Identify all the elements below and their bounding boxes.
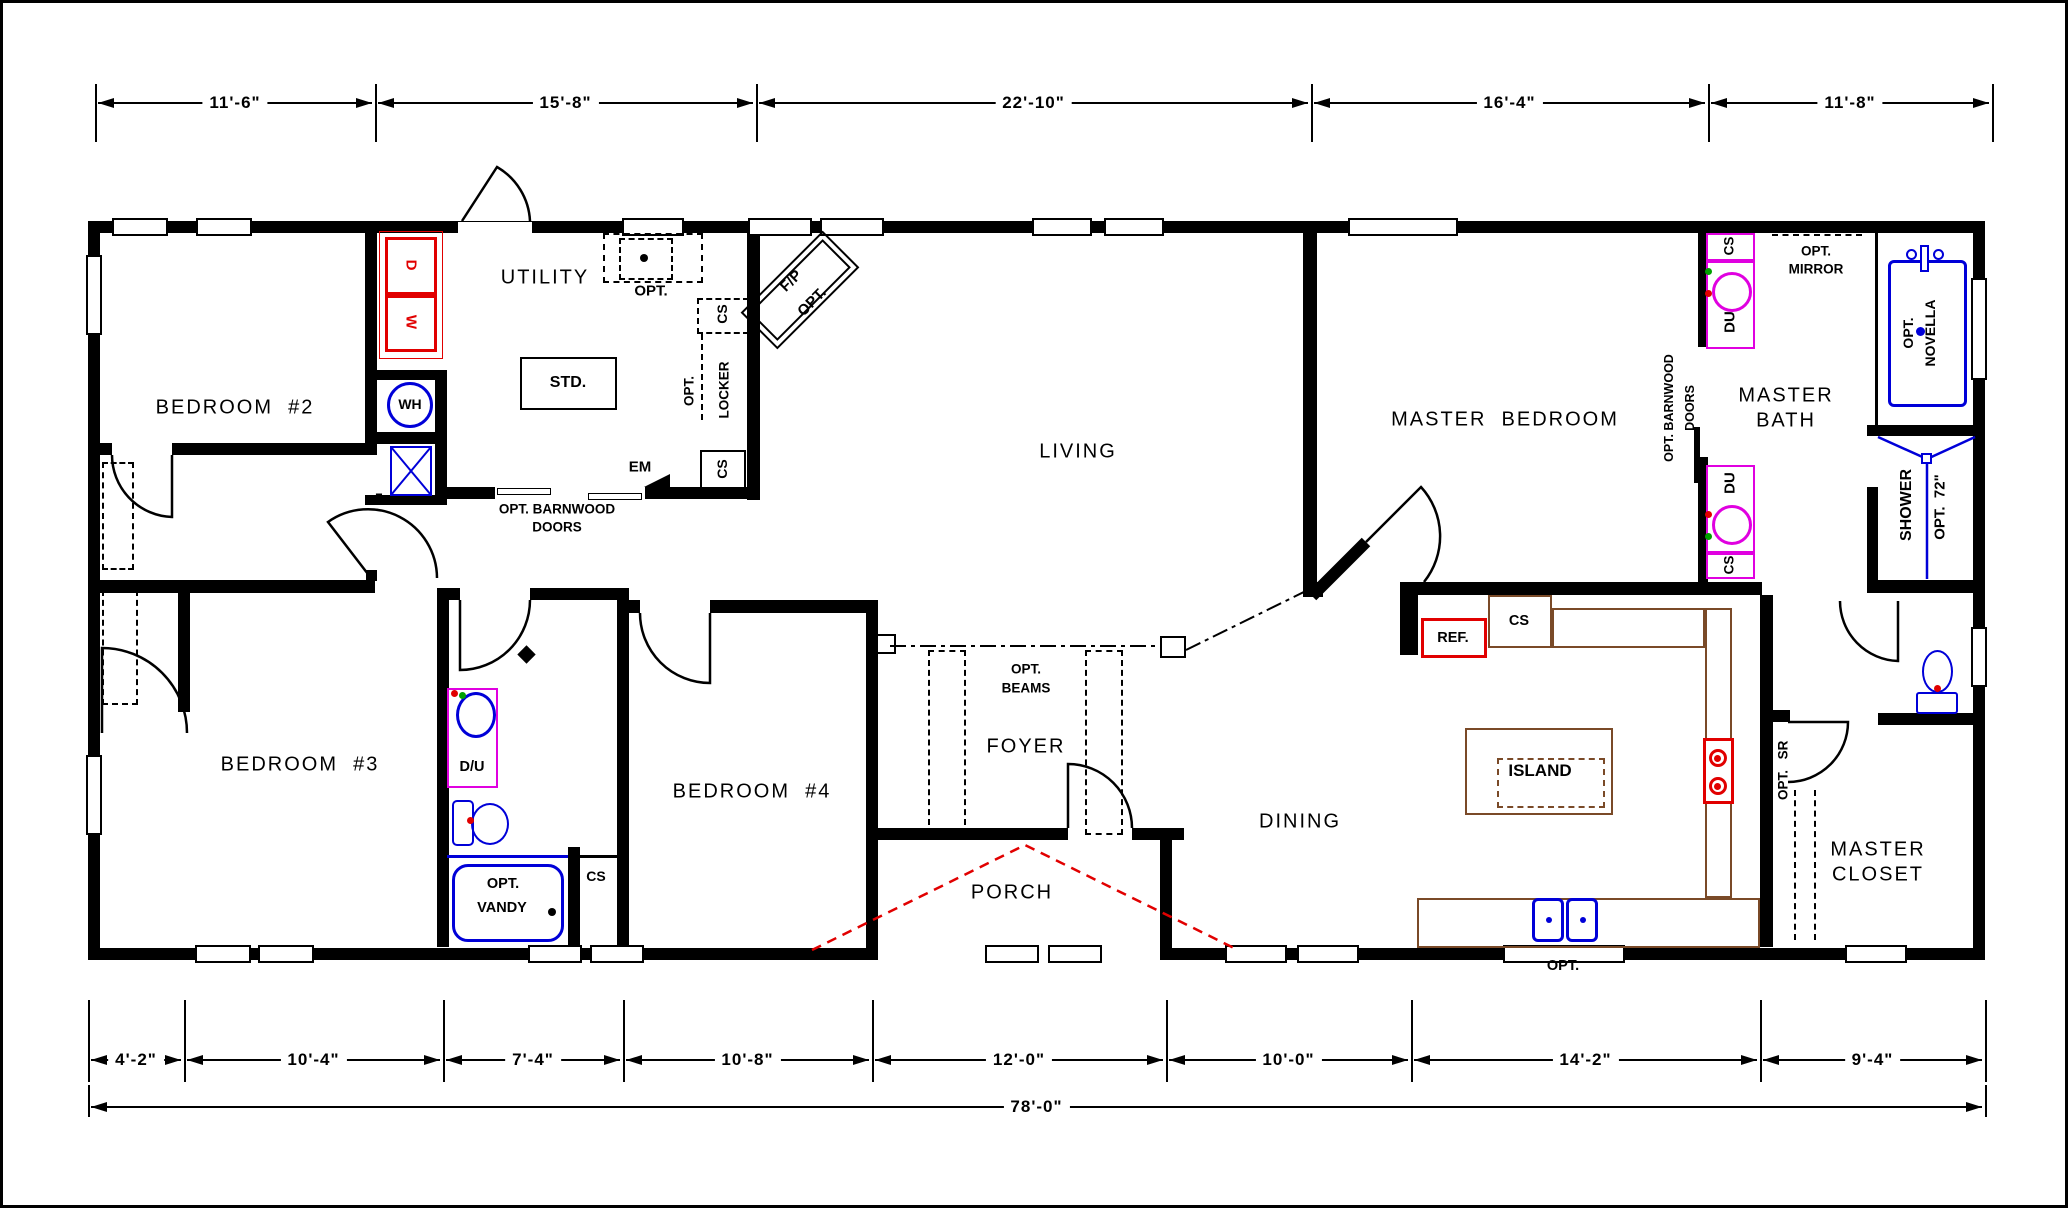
tag-cs-utility-top: CS — [714, 304, 730, 323]
floor-plan-sheet: BEDROOM #2BEDROOM #3BEDROOM #4UTILITYLIV… — [0, 0, 2068, 1208]
door-arc-front-entry — [1068, 764, 1132, 828]
dim-bottom-label: 10'-4" — [280, 1050, 346, 1070]
door-arc-bedroom3 — [328, 509, 437, 578]
room-master-bath-1: MASTER — [1738, 385, 1833, 408]
door-arc-master-closet — [1788, 722, 1848, 782]
dim-top-label: 11'-6" — [202, 93, 267, 113]
shower-drain — [1922, 454, 1931, 463]
tag-du-hall: D/U — [460, 759, 485, 775]
tag-opt-vandy-1: OPT. — [487, 876, 519, 892]
tag-opt-mirror-2: MIRROR — [1789, 262, 1844, 277]
tag-washer: W — [403, 315, 420, 329]
door-arc-bedroom3-closet — [102, 648, 187, 733]
tag-barnwood-mbr-2: DOORS — [1683, 385, 1697, 431]
tag-shower: SHOWER — [1898, 469, 1916, 541]
tag-cs-utility-bot: CS — [714, 459, 730, 478]
tag-opt-novella-2: NOVELLA — [1922, 300, 1938, 367]
tag-ref: REF. — [1437, 630, 1468, 646]
tag-sr-opt: OPT. — [1776, 770, 1791, 800]
tag-cs-hall-bath: CS — [586, 868, 605, 884]
room-master-bath-2: BATH — [1756, 410, 1816, 433]
room-master-bedroom: MASTER BEDROOM — [1391, 409, 1619, 432]
tag-opt-kitchen-sink: OPT. — [1547, 958, 1579, 974]
ceiling-break-line — [1186, 588, 1312, 650]
door-arc-bedroom2 — [112, 455, 172, 517]
dim-overall-label: 78'-0" — [1003, 1097, 1069, 1117]
room-bedroom-2: BEDROOM #2 — [156, 397, 315, 420]
tag-barnwood-util-1: OPT. BARNWOOD — [499, 502, 615, 517]
linen-x-mark — [391, 447, 431, 495]
tag-cs-bath-top: CS — [1722, 237, 1737, 256]
tag-seven: 7 — [375, 491, 382, 506]
dim-bottom-label: 9'-4" — [1845, 1050, 1901, 1070]
tag-opt-novella-1: OPT. — [1900, 317, 1916, 348]
room-living: LIVING — [1039, 441, 1117, 464]
tag-locker: LOCKER — [717, 362, 732, 419]
dim-bottom-label: 10'-8" — [714, 1050, 780, 1070]
dim-bottom-label: 7'-4" — [505, 1050, 561, 1070]
room-foyer: FOYER — [987, 736, 1066, 759]
tag-opt-utility-sink: OPT. — [634, 283, 667, 300]
door-arc-master-bedroom — [1366, 487, 1440, 582]
door-arc-bedroom4 — [640, 613, 710, 683]
tag-shower-opt-72: OPT. 72" — [1932, 474, 1949, 539]
room-master-closet-2: CLOSET — [1832, 864, 1924, 887]
dim-top-label: 16'-4" — [1476, 93, 1542, 113]
dim-bottom-label: 10'-0" — [1255, 1050, 1321, 1070]
tag-opt-mirror-1: OPT. — [1801, 244, 1831, 259]
dim-bottom-label: 12'-0" — [986, 1050, 1052, 1070]
tag-dryer: D — [403, 260, 420, 271]
tag-opt-beams-2: BEAMS — [1002, 681, 1051, 696]
dim-bottom-label: 14'-2" — [1552, 1050, 1618, 1070]
door-arc-hall-bath — [460, 600, 530, 670]
tag-du-1: DU — [1722, 311, 1739, 333]
tag-opt-vandy-2: VANDY — [477, 900, 527, 916]
door-arc-utility-exterior — [462, 167, 530, 221]
dim-top-label: 22'-10" — [995, 93, 1072, 113]
room-bedroom-3: BEDROOM #3 — [221, 754, 380, 777]
tag-barnwood-mbr-1: OPT. BARNWOOD — [1662, 354, 1676, 462]
room-dining: DINING — [1259, 811, 1341, 834]
angled-wall-master-entry — [1312, 542, 1366, 596]
tag-cs-bath-bot: CS — [1722, 556, 1737, 575]
tag-wh: WH — [398, 396, 421, 412]
tag-barnwood-util-2: DOORS — [532, 520, 582, 535]
floor-plan: BEDROOM #2BEDROOM #3BEDROOM #4UTILITYLIV… — [0, 0, 2068, 1208]
tag-opt-beams-1: OPT. — [1011, 662, 1041, 677]
tag-du-2: DU — [1722, 472, 1739, 494]
door-arc-water-closet — [1840, 601, 1898, 661]
tag-std: STD. — [550, 374, 586, 392]
dim-top-label: 15'-8" — [532, 93, 598, 113]
dim-top-label: 11'-8" — [1817, 93, 1882, 113]
tag-cs-kitchen: CS — [1509, 613, 1529, 629]
room-porch: PORCH — [971, 882, 1053, 905]
tag-opt-locker: OPT. — [682, 376, 697, 406]
room-utility: UTILITY — [501, 267, 589, 290]
room-bedroom-4: BEDROOM #4 — [673, 781, 832, 804]
dim-bottom-label: 4'-2" — [108, 1050, 164, 1070]
tag-sr: SR — [1776, 741, 1791, 760]
tag-island: ISLAND — [1508, 761, 1571, 781]
plan-linework — [0, 0, 2068, 1208]
tag-em: EM — [629, 459, 652, 476]
room-master-closet-1: MASTER — [1830, 839, 1925, 862]
